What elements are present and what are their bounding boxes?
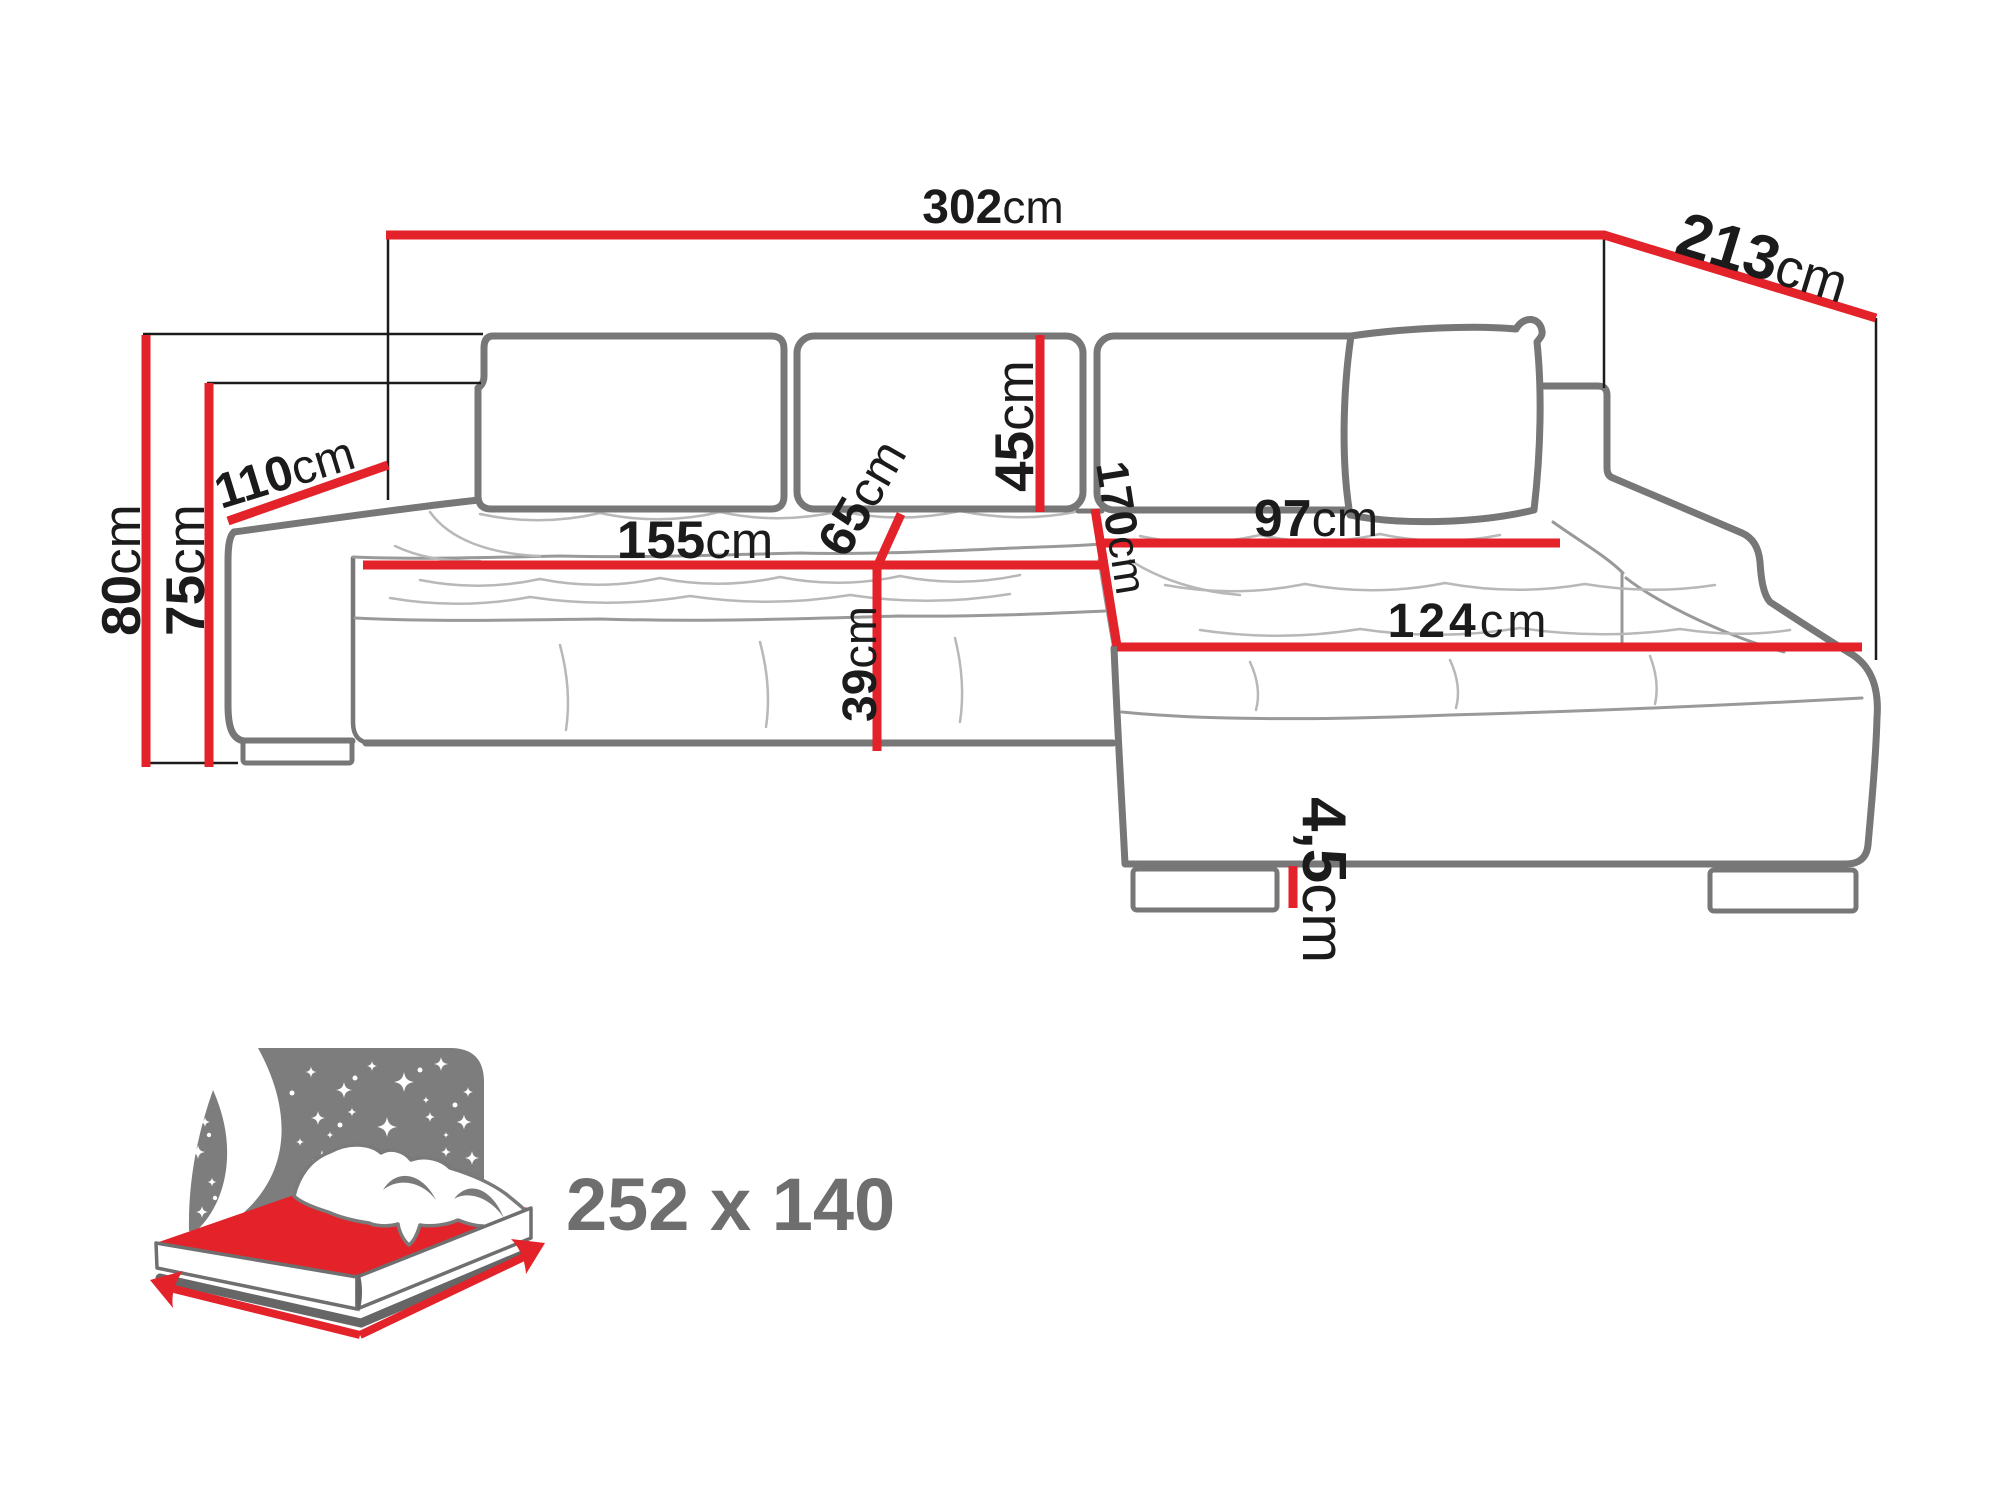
svg-text:252 x 140: 252 x 140 — [566, 1163, 895, 1246]
svg-text:80cm: 80cm — [90, 504, 152, 636]
svg-text:97cm: 97cm — [1254, 490, 1379, 548]
svg-text:4,5cm: 4,5cm — [1289, 797, 1358, 963]
svg-text:45cm: 45cm — [983, 360, 1045, 492]
svg-text:155cm: 155cm — [617, 511, 773, 570]
svg-text:302cm: 302cm — [922, 181, 1063, 234]
svg-text:75cm: 75cm — [154, 504, 216, 636]
svg-text:39cm: 39cm — [833, 606, 887, 722]
svg-text:124cm: 124cm — [1388, 594, 1551, 648]
